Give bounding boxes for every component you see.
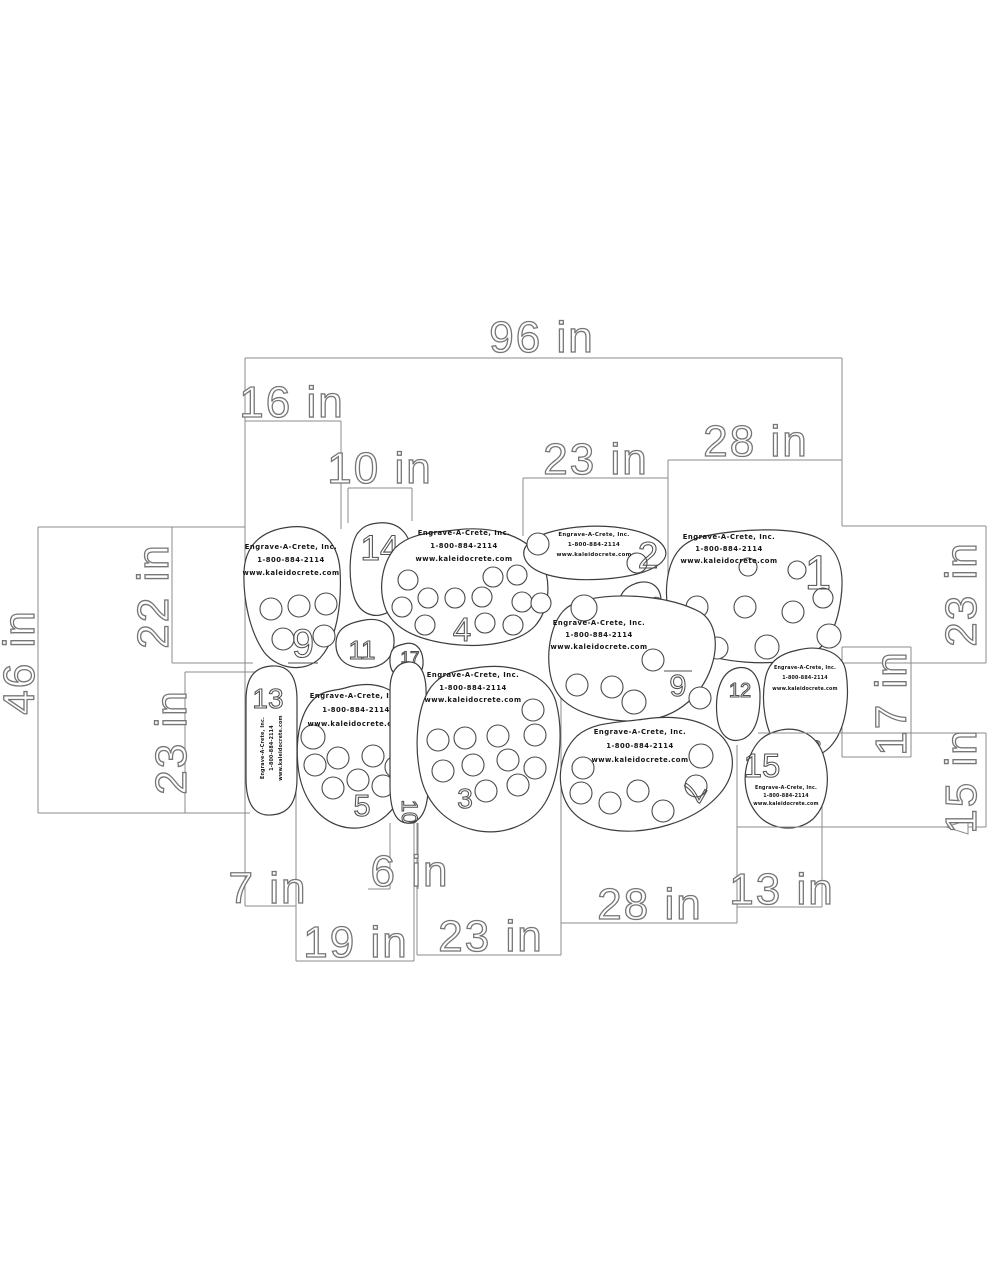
company-phone: 1-800-884-2114 bbox=[568, 542, 620, 548]
company-phone: 1-800-884-2114 bbox=[430, 542, 498, 550]
stone-12: 12 bbox=[717, 668, 760, 741]
company-name: Engrave-A-Crete, Inc. bbox=[755, 785, 817, 791]
dim-23-left-label: 23 in bbox=[147, 689, 196, 794]
company-website: www.kaleidocrete.com bbox=[772, 686, 837, 692]
company-website: www.kaleidocrete.com bbox=[556, 552, 631, 558]
dim-28-bottom-label: 28 in bbox=[597, 880, 702, 929]
dim-23-right-label: 23 in bbox=[937, 541, 986, 646]
stone-1-number: 1 bbox=[805, 547, 832, 600]
dim-13-bottom-label: 13 in bbox=[729, 865, 834, 914]
company-name: Engrave-A-Crete, Inc. bbox=[774, 665, 836, 671]
dim-22-left-label: 22 in bbox=[129, 543, 178, 648]
dim-17-right-label: 17 in bbox=[867, 650, 916, 755]
dim-10-line bbox=[348, 488, 412, 523]
company-phone: 1-800-884-2114 bbox=[257, 556, 325, 564]
stone-11: 11 bbox=[336, 619, 394, 668]
stone-3: Engrave-A-Crete, Inc. 1-800-884-2114 www… bbox=[417, 666, 560, 831]
stone-4-number: 4 bbox=[453, 611, 471, 648]
company-website: www.kaleidocrete.com bbox=[680, 557, 777, 565]
company-website: www.kaleidocrete.com bbox=[424, 696, 521, 704]
stone-13-number: 13 bbox=[252, 683, 283, 714]
stone-2-number: 2 bbox=[638, 535, 659, 576]
company-phone: 1-800-884-2114 bbox=[269, 725, 275, 771]
stone-6-number: 6 bbox=[669, 668, 686, 703]
stone-2: Engrave-A-Crete, Inc. 1-800-884-2114 www… bbox=[524, 526, 666, 579]
company-name: Engrave-A-Crete, Inc. bbox=[418, 529, 510, 537]
company-name: Engrave-A-Crete, Inc. bbox=[558, 532, 629, 538]
company-website: www.kaleidocrete.com bbox=[278, 715, 284, 780]
company-name: Engrave-A-Crete, Inc. bbox=[245, 543, 337, 551]
company-name: Engrave-A-Crete, Inc. bbox=[310, 692, 402, 700]
stone-5-number: 5 bbox=[353, 788, 370, 823]
stone-6: Engrave-A-Crete, Inc. 1-800-884-2114 www… bbox=[549, 595, 716, 721]
dim-23-top-label: 23 in bbox=[543, 435, 648, 484]
company-name: Engrave-A-Crete, Inc. bbox=[683, 533, 775, 541]
company-website: www.kaleidocrete.com bbox=[415, 555, 512, 563]
dim-22-left-line bbox=[172, 527, 253, 663]
dim-46-left-label: 46 in bbox=[0, 609, 44, 714]
dim-10-label: 10 in bbox=[327, 444, 432, 493]
dim-7-bottom-label: 7 in bbox=[229, 864, 308, 913]
stone-3-number: 3 bbox=[457, 783, 473, 814]
dim-6-bottom-label: 6 in bbox=[371, 847, 450, 896]
company-phone: 1-800-884-2114 bbox=[763, 793, 809, 799]
company-website: www.kaleidocrete.com bbox=[753, 801, 818, 807]
dim-overall-width-label: 96 in bbox=[489, 313, 594, 362]
stone-13: Engrave-A-Crete, Inc. 1-800-884-2114 www… bbox=[246, 666, 297, 815]
stone-9-number: 9 bbox=[292, 622, 314, 666]
dim-16-label: 16 in bbox=[239, 378, 344, 427]
company-phone: 1-800-884-2114 bbox=[565, 631, 633, 639]
dimension-lines bbox=[38, 358, 986, 961]
company-website: www.kaleidocrete.com bbox=[550, 643, 647, 651]
company-name: Engrave-A-Crete, Inc. bbox=[427, 671, 519, 679]
company-name: Engrave-A-Crete, Inc. bbox=[553, 619, 645, 627]
stone-12-outline bbox=[717, 668, 760, 741]
stone-10-number: 10 bbox=[397, 800, 422, 824]
company-phone: 1-800-884-2114 bbox=[695, 545, 763, 553]
dim-23-bottom-label: 23 in bbox=[438, 912, 543, 961]
stencil-pattern-drawing: Engrave-A-Crete, Inc. 1-800-884-2114 www… bbox=[0, 0, 989, 1280]
stone-9: Engrave-A-Crete, Inc. 1-800-884-2114 www… bbox=[242, 527, 340, 668]
dim-15-right-label: 15 in bbox=[937, 728, 986, 833]
dim-28-top-label: 28 in bbox=[703, 417, 808, 466]
company-name: Engrave-A-Crete, Inc. bbox=[260, 717, 266, 779]
stone-12-number: 12 bbox=[729, 680, 751, 702]
drawing-canvas: Engrave-A-Crete, Inc. 1-800-884-2114 www… bbox=[0, 0, 989, 1280]
stone-15-number: 15 bbox=[744, 747, 781, 784]
company-website: www.kaleidocrete.com bbox=[591, 756, 688, 764]
dim-19-bottom-label: 19 in bbox=[303, 918, 408, 967]
company-phone: 1-800-884-2114 bbox=[322, 706, 390, 714]
stones: Engrave-A-Crete, Inc. 1-800-884-2114 www… bbox=[242, 523, 847, 832]
company-phone: 1-800-884-2114 bbox=[439, 684, 507, 692]
company-phone: 1-800-884-2114 bbox=[606, 742, 674, 750]
company-website: www.kaleidocrete.com bbox=[242, 569, 339, 577]
company-name: Engrave-A-Crete, Inc. bbox=[594, 728, 686, 736]
stone-11-number: 11 bbox=[349, 635, 376, 665]
stone-15: Engrave-A-Crete, Inc. 1-800-884-2114 www… bbox=[744, 729, 828, 828]
stone-7: Engrave-A-Crete, Inc. 1-800-884-2114 www… bbox=[560, 717, 732, 831]
company-phone: 1-800-884-2114 bbox=[782, 675, 828, 681]
